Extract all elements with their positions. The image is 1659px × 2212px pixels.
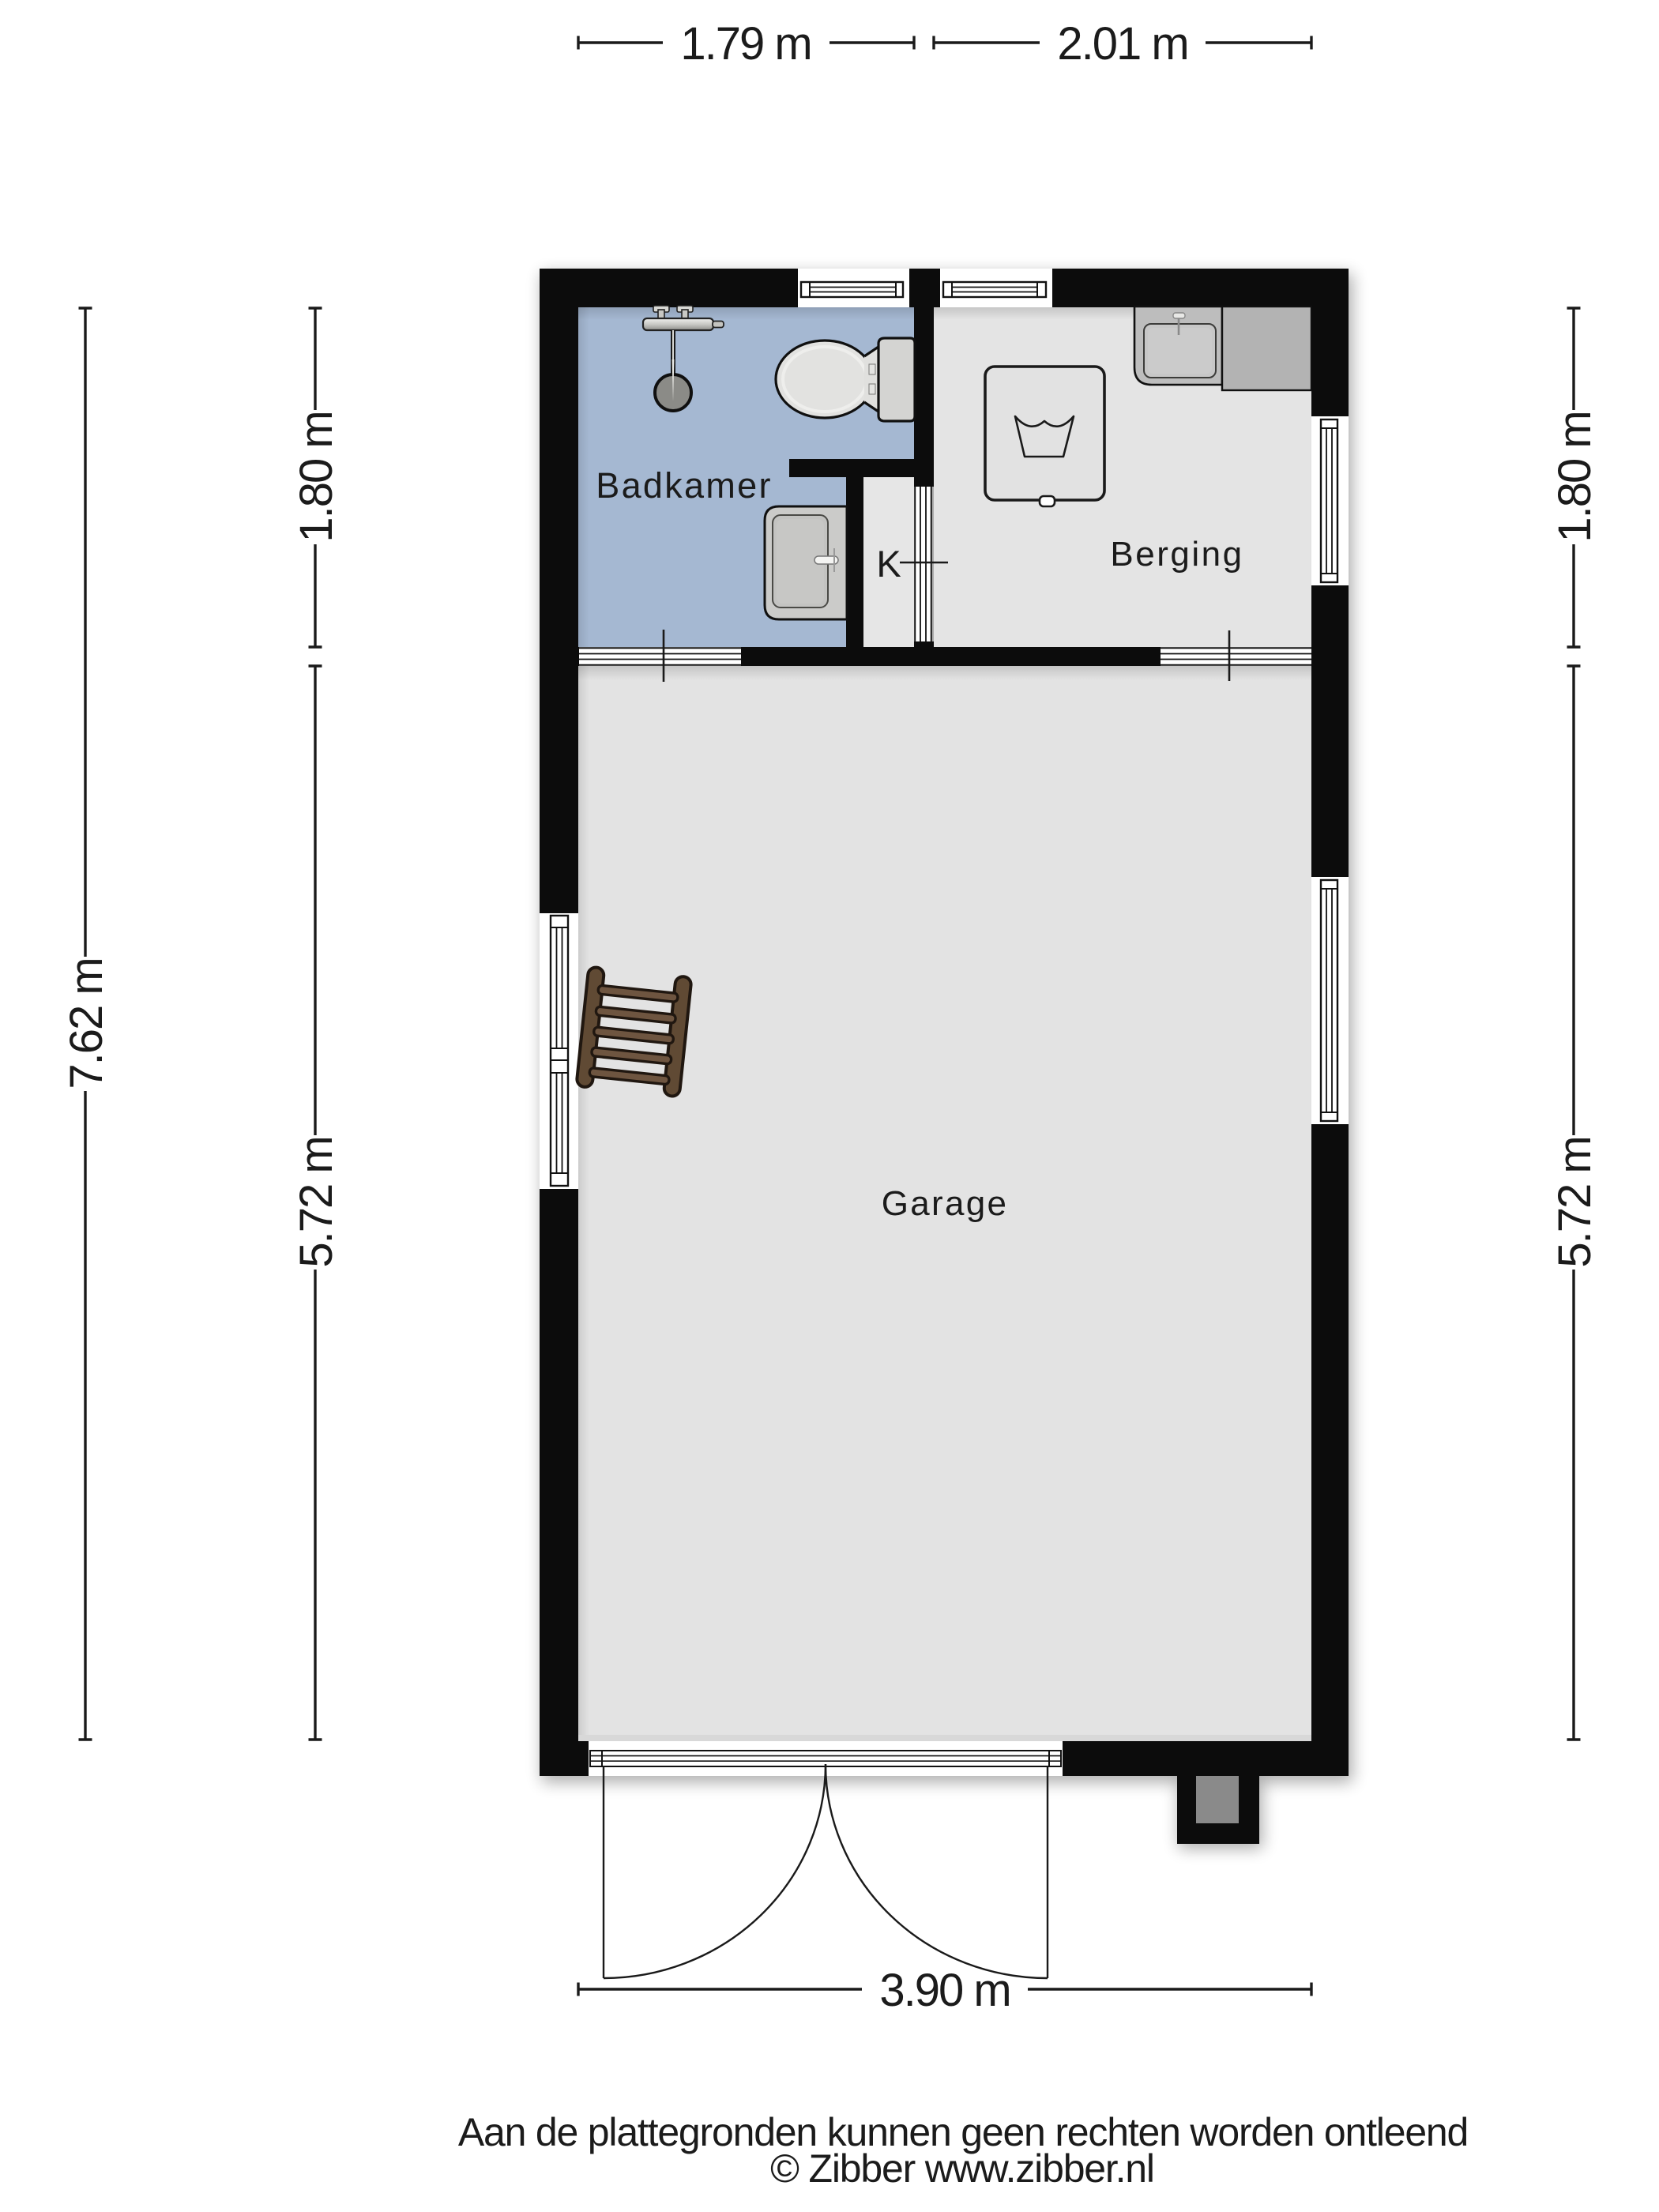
svg-text:K: K [876,543,901,585]
svg-text:7.62 m: 7.62 m [61,958,112,1089]
svg-text:5.72 m: 5.72 m [291,1137,342,1267]
svg-text:3.90 m: 3.90 m [879,1965,1010,2016]
svg-text:2.01 m: 2.01 m [1057,18,1187,70]
svg-text:5.72 m: 5.72 m [1549,1137,1601,1267]
svg-text:Berging: Berging [1110,535,1243,574]
svg-text:Garage: Garage [882,1184,1009,1223]
svg-text:1.80 m: 1.80 m [291,412,342,542]
svg-text:1.79 m: 1.79 m [680,18,811,70]
svg-text:1.80 m: 1.80 m [1549,412,1601,542]
svg-text:© Zibber www.zibber.nl: © Zibber www.zibber.nl [770,2146,1154,2191]
svg-text:Badkamer: Badkamer [596,465,773,506]
